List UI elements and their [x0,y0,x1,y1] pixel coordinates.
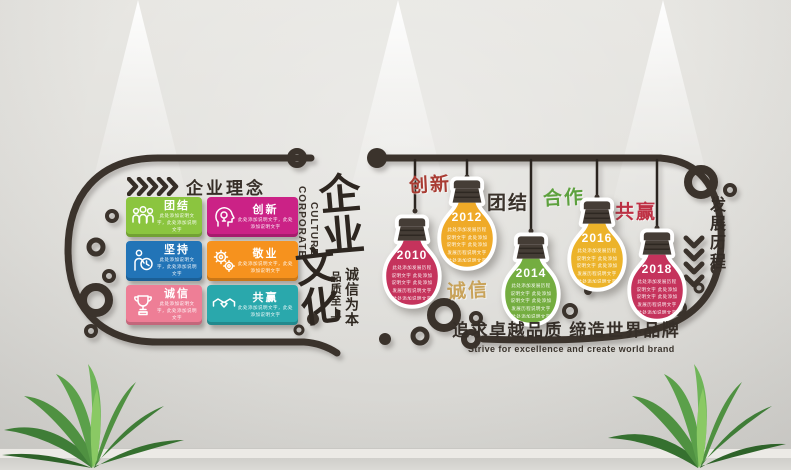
person-clock-icon [130,248,156,274]
motto-pinzhizhishang: 品质至上 [327,271,343,319]
card-body-text: 此处添加说明文字，此处添加说明文字 [237,305,294,319]
philosophy-heading: 企业理念 [127,174,266,199]
slogan-chinese: 追求卓越品质 缔造世界品牌 [452,316,680,341]
milestone-bulb-2014: 2014 此处添加发展历程说明文字 此处添加说明文字 此处添加发展历程说明文字 … [498,228,564,330]
card-body-text: 此处添加说明文字，此处添加说明文字 [156,301,198,322]
philosophy-card-chengxin: 诚信 此处添加说明文字，此处添加说明文字 [126,285,202,325]
word-chengxin: 诚信 [446,275,489,304]
milestone-body-text: 此处添加发展历程说明文字 此处添加说明文字 此处添加发展历程说明文字 此处添加说… [390,264,434,300]
card-title: 共赢 [237,292,294,305]
philosophy-heading-label: 企业理念 [186,174,266,199]
milestone-bulb-2012: 2012 此处添加发展历程说明文字 此处添加说明文字 此处添加发展历程说明文字 … [434,172,500,274]
philosophy-cards: 团结 此处添加说明文字，此处添加说明文字 创新 此处添加说明文字，此处添加说明文… [126,197,298,325]
milestone-body-text: 此处添加发展历程说明文字 此处添加说明文字 此处添加发展历程说明文字 此处添加说… [509,282,553,318]
philosophy-card-tuanjie: 团结 此处添加说明文字，此处添加说明文字 [126,197,202,237]
milestone-year: 2018 [624,262,690,276]
chevrons-right-icon [127,177,179,196]
card-body-text: 此处添加说明文字，此处添加说明文字 [156,213,198,234]
card-body-text: 此处添加说明文字，此处添加说明文字 [237,217,294,231]
milestone-year: 2012 [434,210,500,224]
idea-head-icon [211,204,237,230]
card-title: 诚信 [156,288,198,301]
motto-chengxinweiben: 诚信为本 [342,267,362,327]
trophy-icon [130,292,156,318]
milestone-body-text: 此处添加发展历程说明文字 此处添加说明文字 此处添加发展历程说明文字 此处添加说… [575,247,619,283]
card-title: 团结 [156,200,198,213]
culture-wall-scene: 企业理念 团结 此处添加说明文字，此处添加说明文字 创新 此处添加说明文字，此处… [0,0,791,470]
development-history-heading: 发展历程 [703,196,727,272]
handshake-icon [211,292,237,318]
philosophy-card-gongying: 共赢 此处添加说明文字，此处添加说明文字 [207,285,298,325]
philosophy-card-chuangxin: 创新 此处添加说明文字，此处添加说明文字 [207,197,298,237]
people-icon [130,204,156,230]
milestone-year: 2016 [564,231,630,245]
philosophy-card-jianchi: 坚持 此处添加说明文字，此处添加说明文字 [126,241,202,281]
slogan-english: Strive for excellence and create world b… [468,344,675,354]
milestone-body-text: 此处添加发展历程说明文字 此处添加说明文字 此处添加发展历程说明文字 此处添加说… [635,278,679,314]
milestone-bulb-2016: 2016 此处添加发展历程说明文字 此处添加说明文字 此处添加发展历程说明文字 … [564,193,630,295]
milestone-body-text: 此处添加发展历程说明文字 此处添加说明文字 此处添加发展历程说明文字 此处添加说… [445,226,489,262]
milestone-bulb-2018: 2018 此处添加发展历程说明文字 此处添加说明文字 此处添加发展历程说明文字 … [624,224,690,326]
card-body-text: 此处添加说明文字，此处添加说明文字 [237,261,294,275]
card-body-text: 此处添加说明文字，此处添加说明文字 [156,257,198,278]
philosophy-card-jingye: 敬业 此处添加说明文字，此处添加说明文字 [207,241,298,281]
card-title: 创新 [237,204,294,217]
milestone-year: 2014 [498,266,564,280]
gears-icon [211,248,237,274]
card-title: 坚持 [156,244,198,257]
